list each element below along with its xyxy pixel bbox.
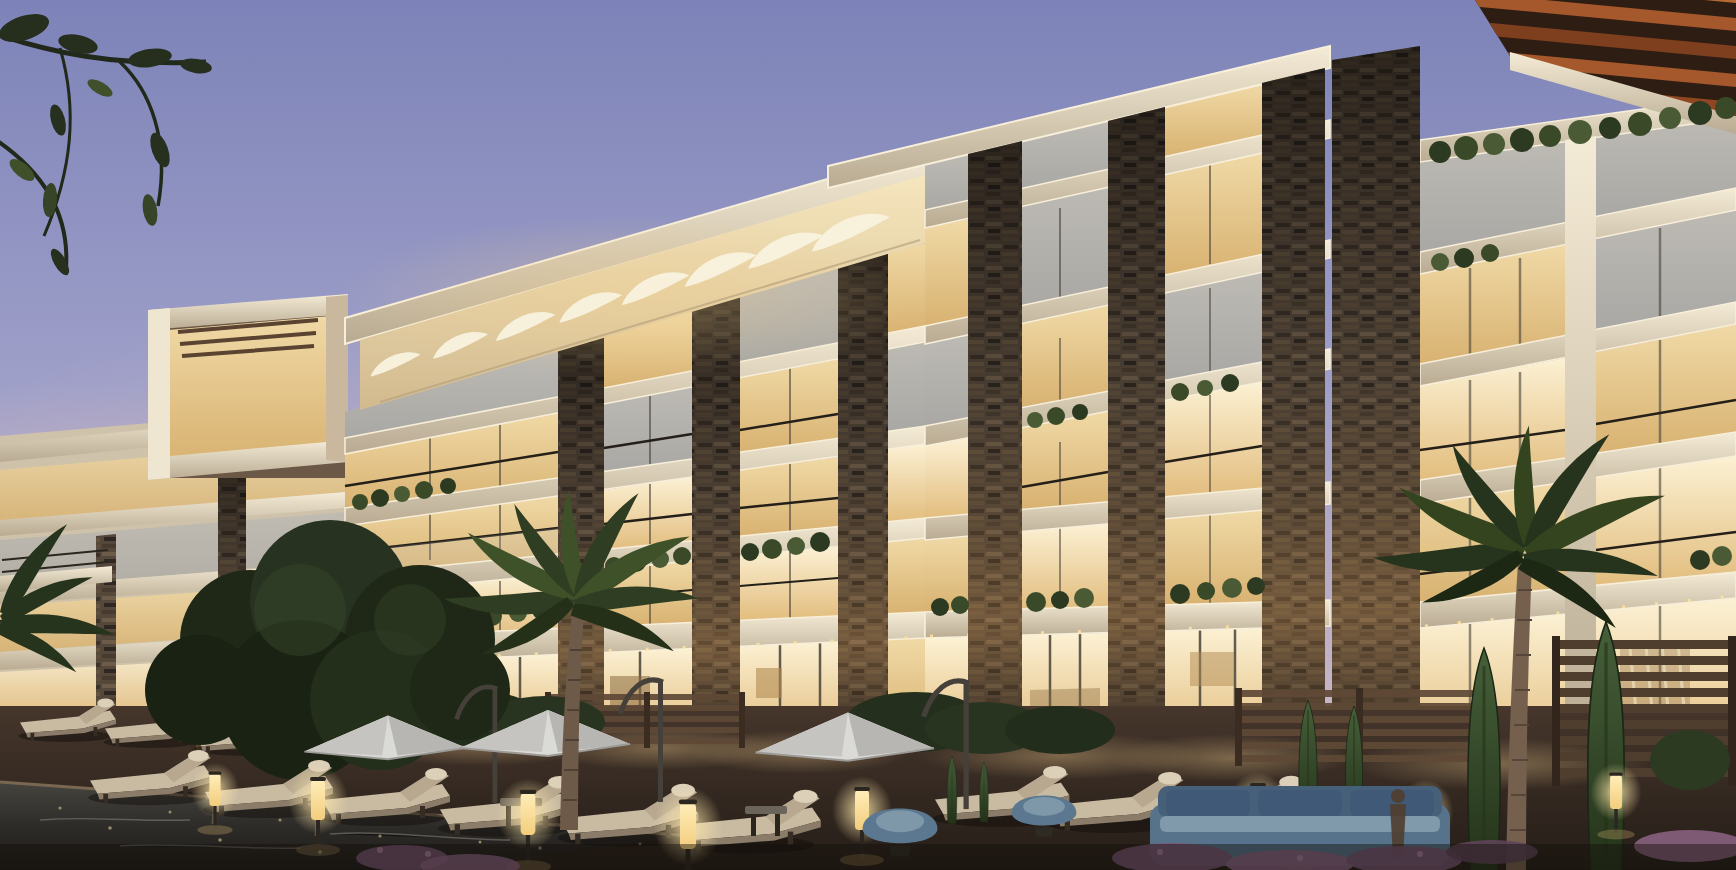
foreground-shadow <box>0 844 1736 870</box>
interior-art-hint <box>756 668 782 698</box>
dusk-apartment-rendering: Twilight architectural rendering of a mo… <box>0 0 1736 870</box>
facade-frame-box <box>148 294 348 480</box>
rightmid-stone-piers <box>968 68 1325 748</box>
rendering-canvas: Twilight architectural rendering of a mo… <box>0 0 1736 870</box>
interior-art-hint <box>1190 652 1234 686</box>
shrub <box>1650 730 1730 790</box>
